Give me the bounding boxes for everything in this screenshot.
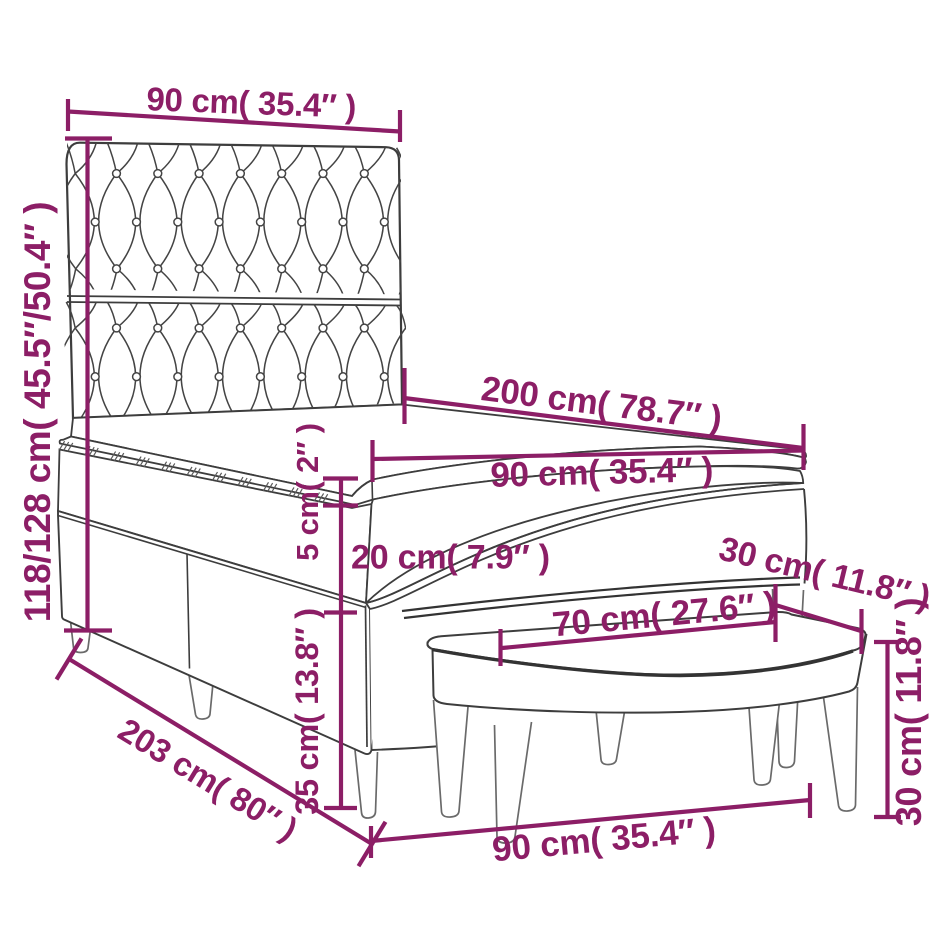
svg-text:30 cm( 11.8″ ): 30 cm( 11.8″ ) [888,598,929,827]
svg-text:118/128 cm( 45.5″/50.4″ ): 118/128 cm( 45.5″/50.4″ ) [17,202,58,622]
svg-text:90 cm( 35.4″ ): 90 cm( 35.4″ ) [146,80,357,125]
svg-text:20 cm( 7.9″ ): 20 cm( 7.9″ ) [351,539,550,577]
svg-text:35 cm( 13.8″ ): 35 cm( 13.8″ ) [289,608,325,814]
svg-text:90 cm( 35.4″ ): 90 cm( 35.4″ ) [490,450,714,495]
svg-text:5 cm( 2″ ): 5 cm( 2″ ) [290,423,325,561]
